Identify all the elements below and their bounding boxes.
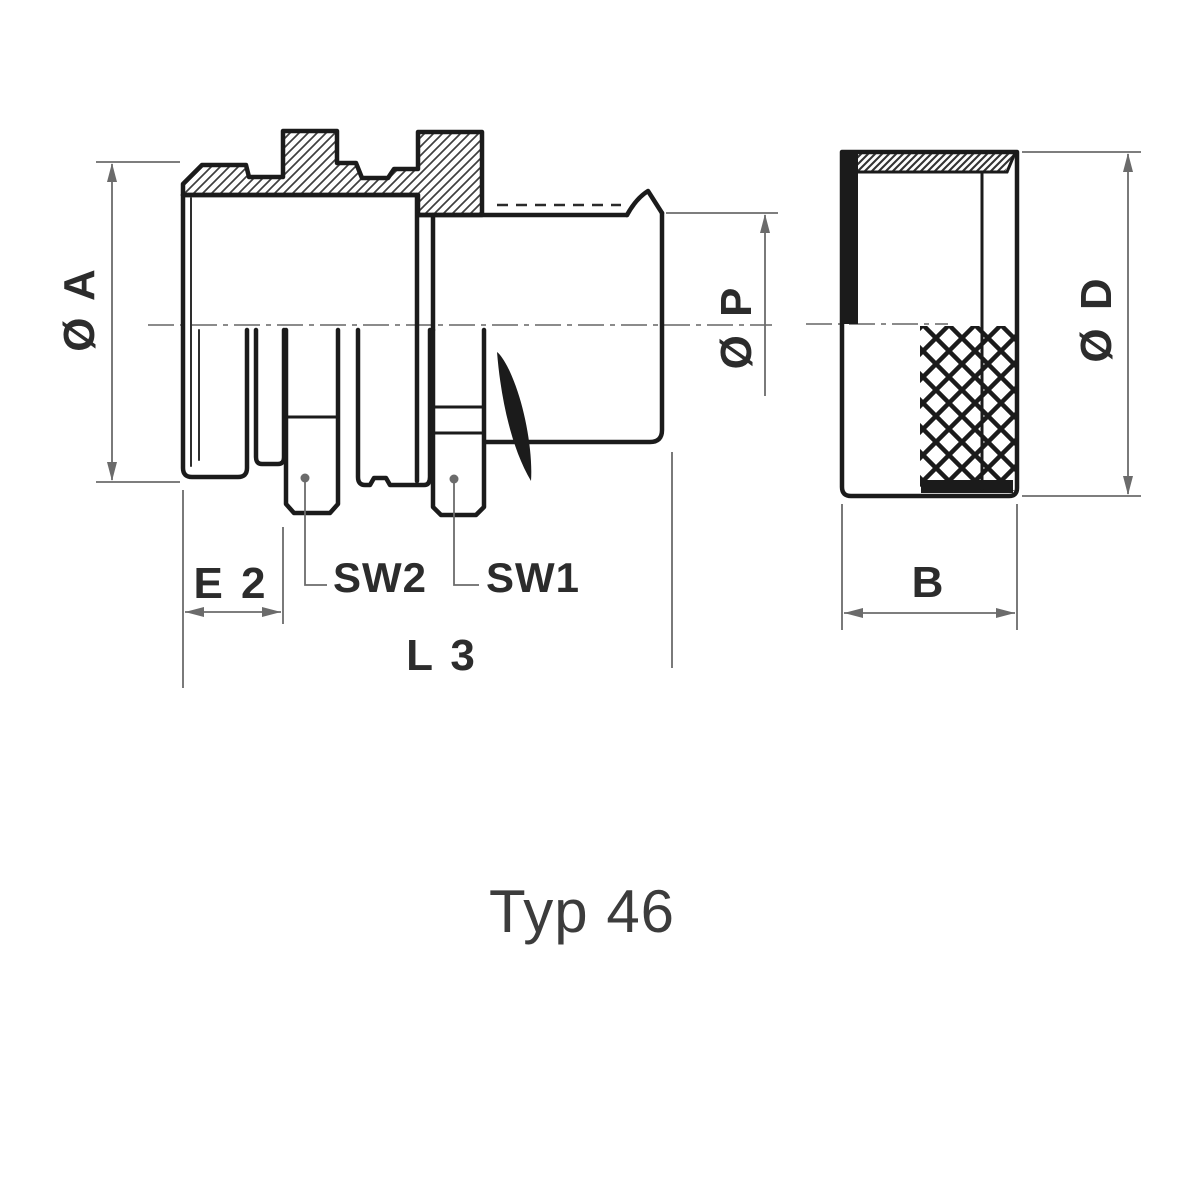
- dimension-dia-a: Ø A: [55, 162, 180, 482]
- callout-sw1: SW1: [450, 475, 581, 602]
- nipple-barb-tip: [627, 191, 662, 215]
- knurl-bottom-band: [921, 480, 1013, 493]
- figure-caption: Typ 46: [489, 878, 675, 945]
- arrow-left-icon: [844, 608, 863, 618]
- dimension-label-dia-a: Ø A: [55, 266, 104, 352]
- arrow-left-icon: [185, 607, 204, 617]
- dimension-dia-d: Ø D: [1022, 152, 1141, 496]
- barb-section-sliver: [497, 352, 531, 481]
- thread-spigot-outline: [183, 195, 247, 477]
- dimension-e2: E 2: [183, 490, 283, 688]
- knurl-pattern-area: [920, 326, 1016, 491]
- arrow-up-icon: [107, 163, 117, 182]
- dimension-label-l3: L 3: [406, 631, 478, 680]
- arrow-right-icon: [262, 607, 281, 617]
- hex-sw2-outline: [286, 330, 338, 513]
- arrow-right-icon: [996, 608, 1015, 618]
- arrow-down-icon: [107, 462, 117, 481]
- dimension-label-e2: E 2: [193, 559, 268, 608]
- dimension-label-dia-d: Ø D: [1072, 275, 1121, 362]
- hex-sw1-outline: [433, 330, 484, 515]
- technical-drawing-figure: Ø A Ø P E 2 SW2: [0, 0, 1200, 1200]
- arrow-up-icon: [1123, 153, 1133, 172]
- flange-section-hatched: [183, 131, 482, 215]
- dimension-label-sw1: SW1: [486, 554, 580, 601]
- arrow-down-icon: [1123, 476, 1133, 495]
- shank-outline: [256, 330, 284, 464]
- dimension-label-sw2: SW2: [333, 554, 427, 601]
- dimension-label-dia-p: Ø P: [712, 285, 761, 370]
- typ-46-drawing: Ø A Ø P E 2 SW2: [0, 0, 1200, 1200]
- connector-front-section-view: [148, 131, 772, 515]
- cap-side-view: [806, 152, 1017, 496]
- cap-top-hatch-band: [844, 154, 1014, 171]
- cap-section-wall: [843, 153, 858, 324]
- callout-sw2: SW2: [301, 474, 428, 602]
- arrow-up-icon: [760, 214, 770, 233]
- dimension-b: B: [842, 504, 1017, 630]
- dimension-dia-p: Ø P: [666, 213, 778, 396]
- dimension-label-b: B: [912, 558, 947, 607]
